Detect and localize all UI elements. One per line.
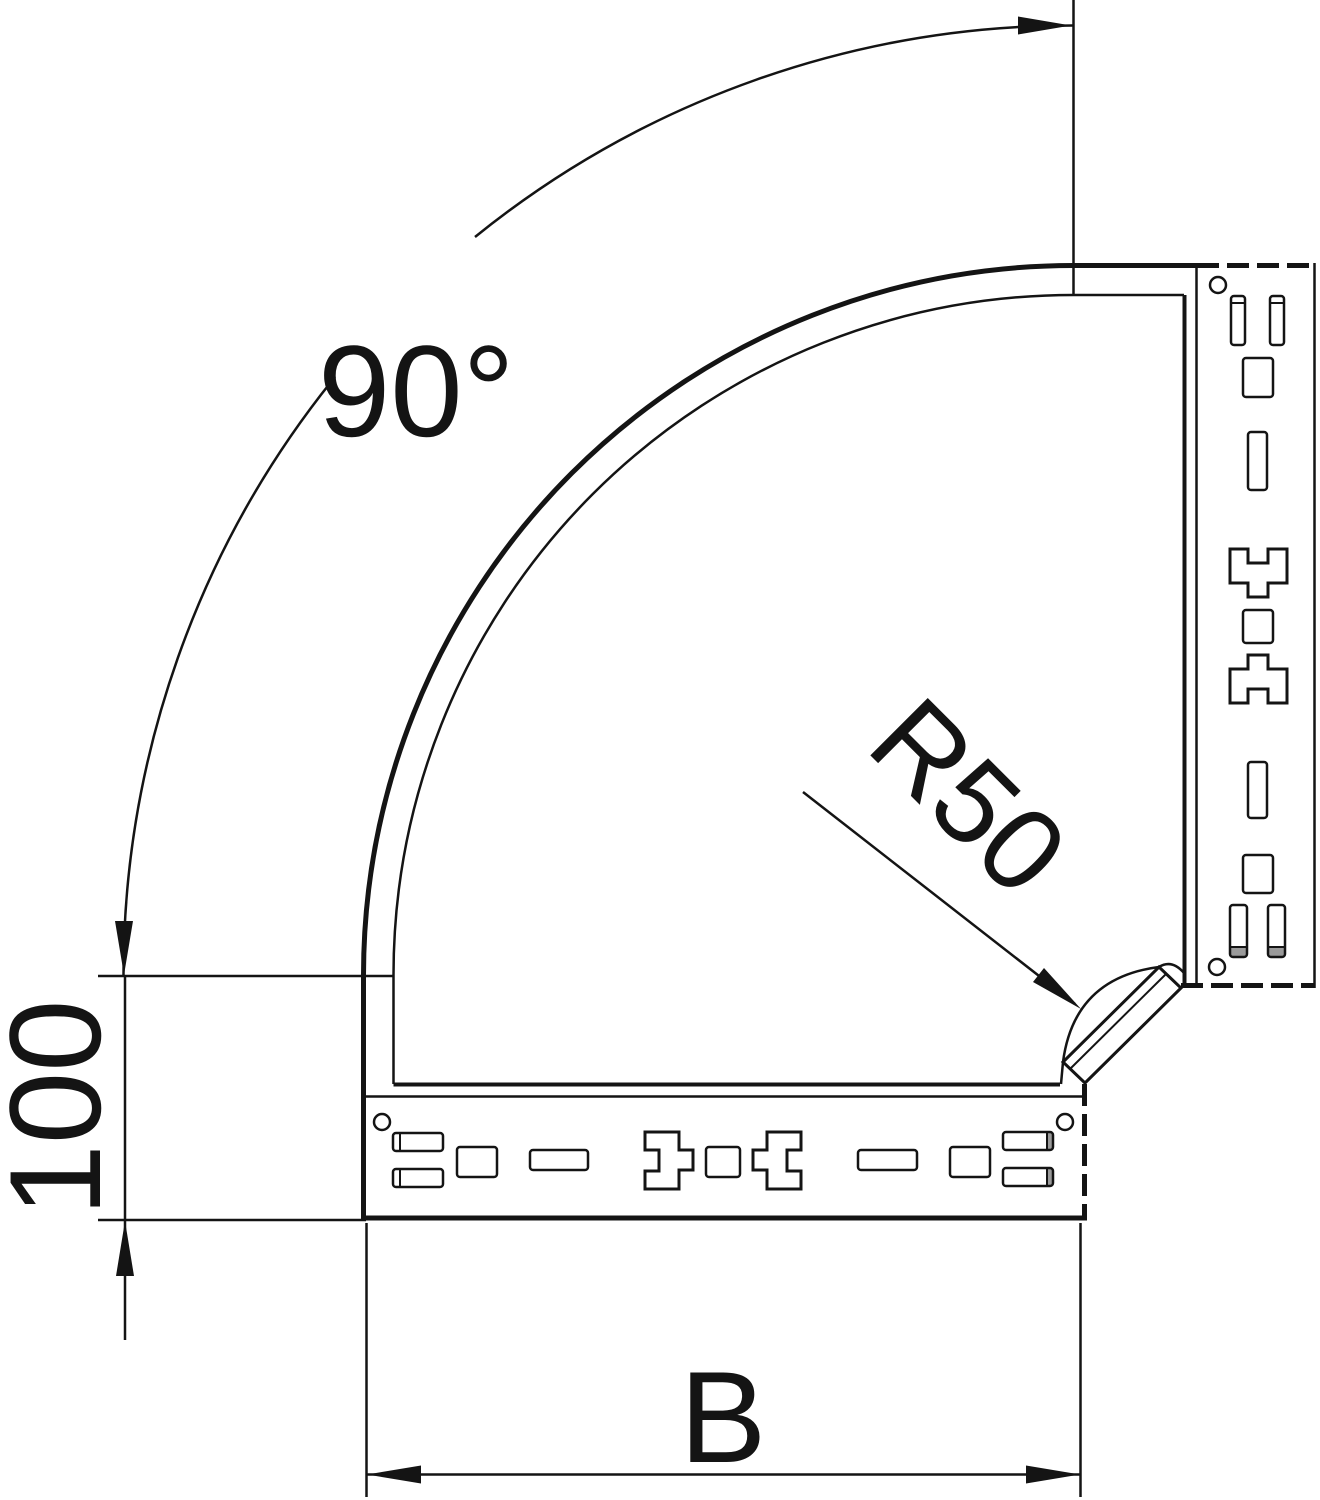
drawing-page: 90° 100 B R50 [0,0,1320,1500]
drawing-canvas: 90° 100 B R50 [0,0,1320,1500]
slot-tab-shading [1231,947,1246,956]
screw-hole [1209,959,1225,975]
radius-dimension-label: R50 [845,674,1091,920]
angle-dim-arc-upper [475,25,1073,237]
arrowhead-up [116,1221,134,1276]
chamfer-lower-connector [1061,1062,1063,1084]
screw-hole [1057,1114,1073,1130]
square-hole [706,1147,740,1177]
slot-hole [858,1150,917,1170]
slot-hole [1003,1168,1053,1186]
coupler-hole-right [753,1132,801,1189]
arrowhead-radius [1033,968,1081,1009]
coupler-hole-lower [1230,655,1287,703]
chamfer-plate [1063,967,1181,1083]
slot-hole [1003,1132,1053,1150]
screw-hole [374,1114,390,1130]
corner-chamfer [1061,964,1184,1084]
arrowhead-right [1026,1466,1080,1484]
square-hole [1243,855,1273,893]
arrowhead-left [367,1466,421,1484]
screw-hole [1210,277,1226,293]
end-length-dimension-label: 100 [0,1000,128,1217]
right-rail-perforations [1209,277,1287,975]
chamfer-plate-fold-line [1070,974,1166,1069]
arrowhead-down [115,921,133,975]
angle-dimension-label: 90° [318,318,515,464]
dimensions: 90° 100 B R50 [0,0,1091,1497]
coupler-hole-left [645,1132,693,1189]
slot-tab-shading [1269,947,1284,956]
slot-hole [530,1150,588,1170]
square-hole [457,1147,497,1177]
bottom-rail-perforations [374,1114,1073,1189]
angle-dim-arc-lower [123,377,335,975]
square-hole [1243,610,1273,643]
coupler-hole-upper [1230,549,1287,597]
square-hole [950,1147,990,1177]
arrowhead-right [1018,17,1071,35]
square-hole [1243,358,1273,397]
slot-hole [1248,762,1267,818]
width-dimension-label: B [680,1344,767,1490]
slot-hole [1248,432,1267,490]
